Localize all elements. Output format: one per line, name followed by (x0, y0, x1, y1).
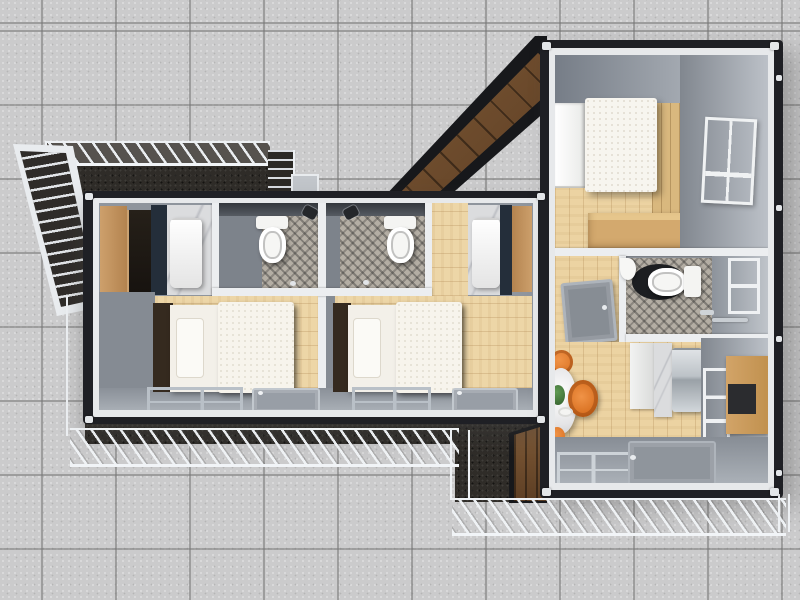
corner-fitting (770, 42, 779, 50)
unit1-counter (151, 205, 167, 295)
corner-fitting (85, 416, 93, 423)
unit2-entry-floor (432, 203, 468, 296)
bed2-duvet (396, 302, 462, 393)
bathroom2-floor-gray (326, 216, 340, 291)
double-bed-duvet (585, 98, 657, 192)
corner-fitting (537, 193, 545, 200)
kitchen-cabinet-white (630, 343, 654, 409)
kitchen-marble-counter (654, 343, 672, 417)
unit1-window (147, 387, 243, 410)
floor-plan-scene (0, 0, 800, 600)
walkway-railing-bottom (452, 498, 786, 536)
bathroom-window (728, 258, 760, 314)
floor-drain2 (363, 280, 369, 285)
unit2-door-handle (457, 391, 462, 395)
wall-cabinet-dark (728, 384, 756, 414)
walkway-end-rail (778, 494, 790, 532)
rear-door-handle (630, 455, 636, 460)
corner-fitting (85, 193, 93, 200)
side-door-handle (602, 305, 607, 310)
bedroom-window (701, 117, 757, 206)
bathroom1-west-wall (212, 203, 219, 296)
tableware (558, 407, 573, 417)
side-entry-door (560, 279, 617, 345)
edge-hinge (776, 470, 782, 476)
bed1-duvet (218, 302, 294, 393)
unit1-mini-fridge (170, 218, 202, 288)
rear-window (557, 452, 631, 483)
unit2-wardrobe (512, 206, 532, 292)
corner-sink (620, 258, 636, 280)
toilet1-bowl (259, 227, 286, 263)
toilet3-bowl (648, 268, 686, 296)
unit-partition-wall (318, 203, 326, 410)
bathrooms-south-wall (212, 288, 432, 296)
unit1-door-handle (258, 391, 263, 395)
floor-drain1 (290, 281, 296, 286)
unit2-counter (500, 205, 512, 295)
walkway-railing-left (70, 428, 459, 467)
unit2-entry-door (452, 388, 518, 410)
rear-door (628, 441, 716, 483)
corner-fitting (542, 488, 551, 496)
unit1-wardrobe (100, 206, 127, 292)
container-right-interior (555, 55, 768, 483)
toilet3-tank (684, 266, 701, 297)
edge-hinge (776, 205, 782, 211)
edge-hinge (776, 75, 782, 81)
corner-fitting (770, 488, 779, 496)
bathroom2-east-wall (425, 203, 432, 296)
corner-fitting (537, 416, 545, 423)
unit2-window (352, 387, 431, 410)
bedroom-south-wall (555, 248, 768, 256)
upper-deck-railing (45, 141, 270, 166)
toilet2-bowl (387, 227, 414, 263)
walkway-step-connector (450, 430, 470, 500)
towel-bar (712, 318, 748, 322)
bathroom2-north-wall (326, 203, 425, 216)
corner-fitting (542, 42, 551, 50)
bath-faucet (700, 310, 714, 315)
bed2-pillow (353, 318, 381, 378)
kitchen-fridge (672, 348, 702, 412)
unit2-mini-fridge (472, 218, 500, 288)
unit1-tall-cabinet (127, 210, 153, 292)
container-left-interior (99, 203, 533, 410)
edge-hinge (776, 336, 782, 342)
bed1-pillow (176, 318, 204, 378)
bedroom-white-wardrobe (555, 103, 585, 188)
